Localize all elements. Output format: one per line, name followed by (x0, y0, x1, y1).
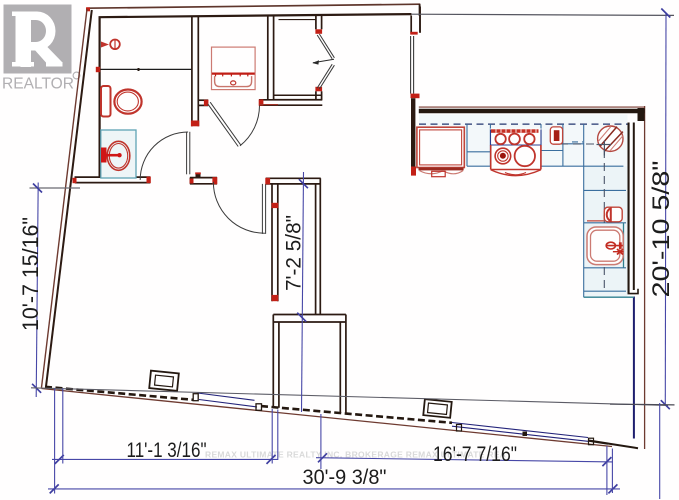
svg-text:7'-2 5/8": 7'-2 5/8" (283, 215, 306, 291)
svg-text:30'-9 3/8": 30'-9 3/8" (303, 466, 387, 489)
svg-text:11'-1 3/16": 11'-1 3/16" (127, 439, 207, 462)
svg-text:10'-7 15/16": 10'-7 15/16" (18, 217, 43, 331)
svg-text:16'-7 7/16": 16'-7 7/16" (433, 443, 517, 466)
svg-text:REALTOR: REALTOR (2, 76, 74, 93)
svg-text:20'-10 5/8": 20'-10 5/8" (648, 161, 675, 298)
